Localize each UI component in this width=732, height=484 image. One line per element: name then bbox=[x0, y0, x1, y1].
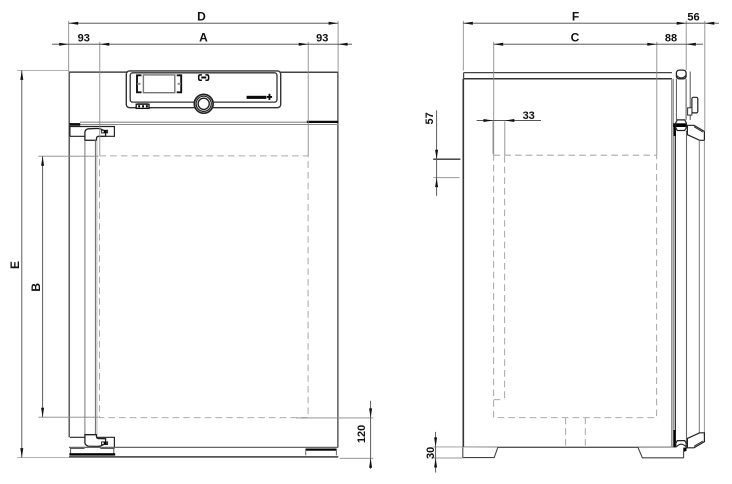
svg-text:88: 88 bbox=[665, 32, 677, 44]
svg-text:D: D bbox=[197, 9, 206, 23]
svg-text:57: 57 bbox=[424, 112, 436, 124]
svg-text:93: 93 bbox=[78, 32, 90, 44]
svg-text:93: 93 bbox=[316, 32, 328, 44]
svg-text:33: 33 bbox=[523, 110, 535, 122]
svg-text:30: 30 bbox=[425, 447, 437, 459]
svg-text:E: E bbox=[8, 261, 22, 269]
svg-text:C: C bbox=[571, 30, 580, 44]
svg-text:120: 120 bbox=[356, 425, 368, 443]
svg-text:F: F bbox=[572, 9, 579, 23]
svg-text:A: A bbox=[199, 30, 208, 44]
svg-text:56: 56 bbox=[687, 12, 699, 24]
svg-text:B: B bbox=[29, 283, 43, 292]
